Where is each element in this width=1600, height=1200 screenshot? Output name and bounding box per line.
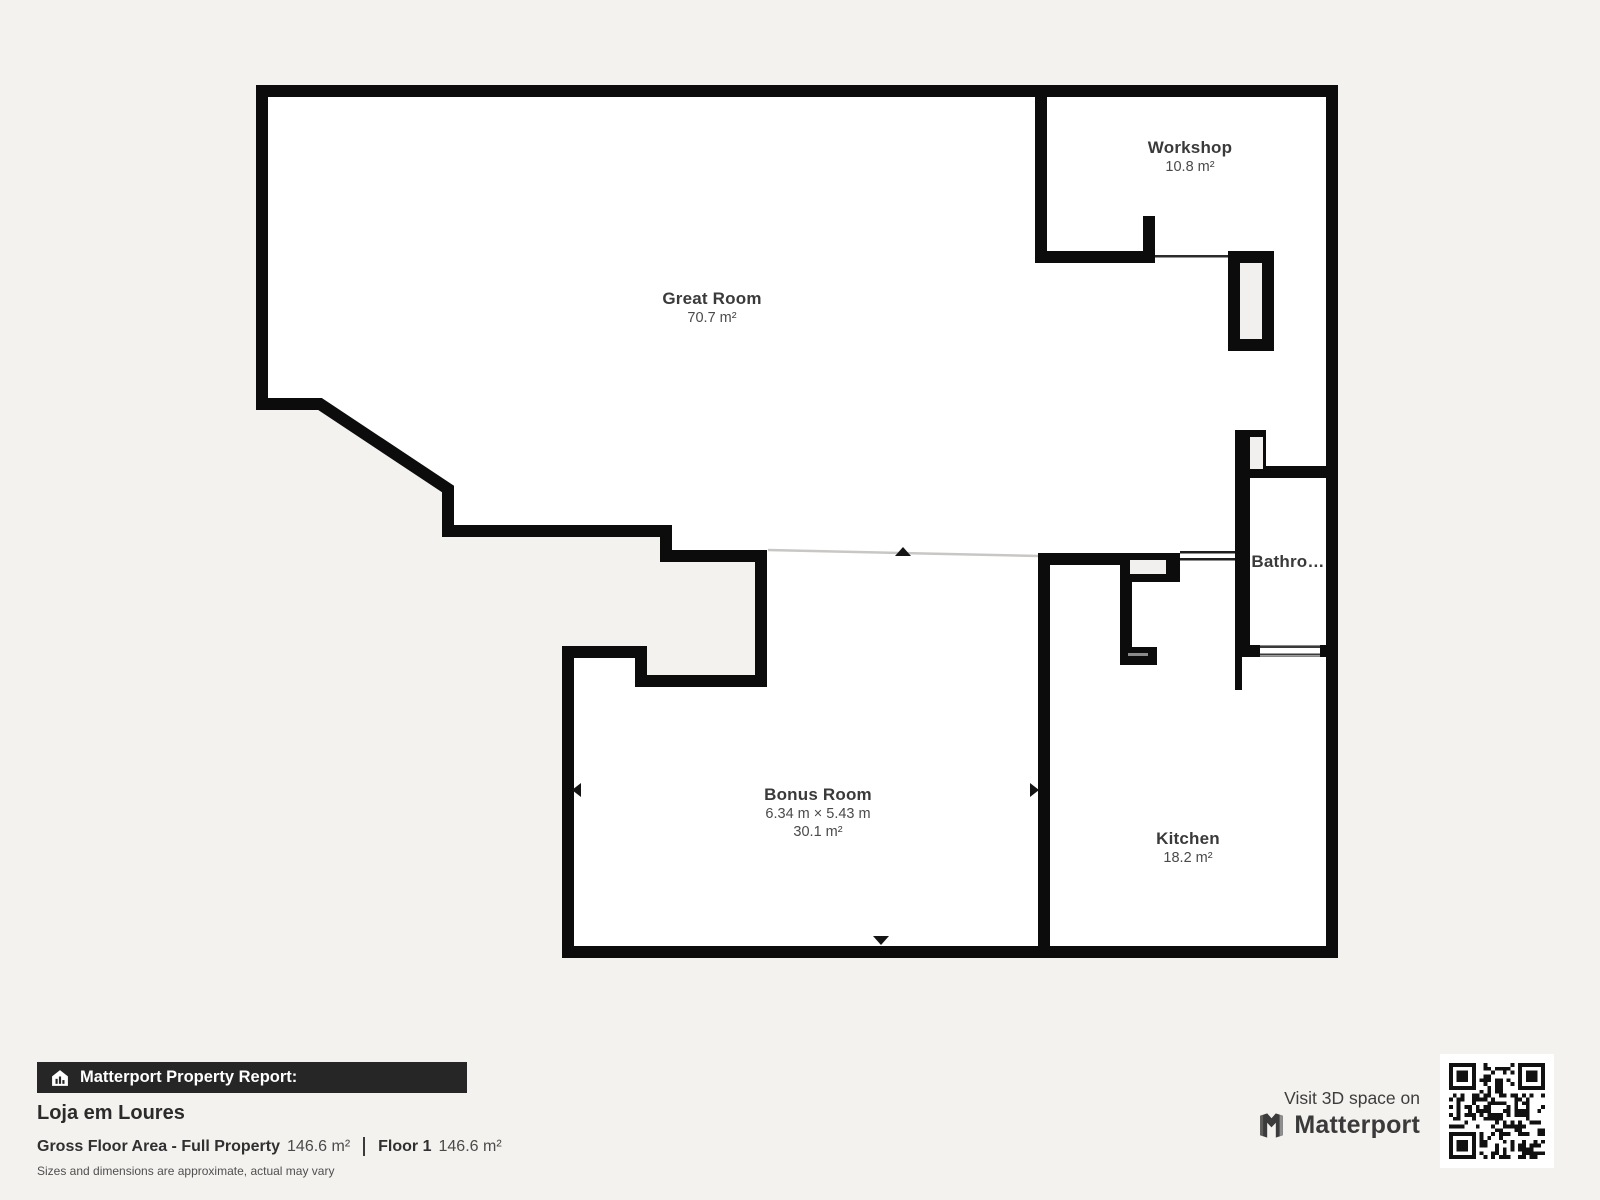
room-name: Bonus Room <box>764 784 872 805</box>
room-label-kitchen: Kitchen 18.2 m² <box>1156 828 1220 867</box>
room-name: Bathro… <box>1251 551 1324 572</box>
room-area: 30.1 m² <box>764 823 872 841</box>
room-name: Great Room <box>662 288 761 309</box>
room-dimensions: 6.34 m × 5.43 m <box>764 805 872 823</box>
page: { "colors": { "background": "#f4f2ef", "… <box>0 0 1600 1200</box>
divider <box>363 1137 365 1156</box>
matterport-logo-icon <box>1258 1112 1285 1139</box>
room-area: 10.8 m² <box>1148 158 1232 176</box>
room-label-great-room: Great Room 70.7 m² <box>662 288 761 327</box>
room-area: 18.2 m² <box>1156 849 1220 867</box>
floor-plan <box>0 0 1600 1200</box>
disclaimer-text: Sizes and dimensions are approximate, ac… <box>37 1164 334 1178</box>
matterport-brand: Matterport <box>1258 1111 1420 1140</box>
floor-label: Floor 1 <box>378 1138 431 1156</box>
room-label-bonus-room: Bonus Room 6.34 m × 5.43 m 30.1 m² <box>764 784 872 841</box>
room-name: Workshop <box>1148 137 1232 158</box>
room-label-workshop: Workshop 10.8 m² <box>1148 137 1232 176</box>
visit-3d-text: Visit 3D space on <box>1284 1088 1420 1109</box>
gross-area-value: 146.6 m² <box>287 1138 350 1156</box>
area-summary: Gross Floor Area - Full Property 146.6 m… <box>37 1137 502 1156</box>
room-name: Kitchen <box>1156 828 1220 849</box>
gross-area-label: Gross Floor Area - Full Property <box>37 1138 280 1156</box>
floor-value: 146.6 m² <box>439 1138 502 1156</box>
report-badge-label: Matterport Property Report: <box>80 1068 297 1087</box>
matterport-wordmark: Matterport <box>1294 1111 1420 1140</box>
qr-code <box>1440 1054 1554 1168</box>
house-chart-icon <box>50 1068 70 1088</box>
room-area: 70.7 m² <box>662 309 761 327</box>
report-badge-bar: Matterport Property Report: <box>37 1062 467 1093</box>
property-name: Loja em Loures <box>37 1102 185 1125</box>
room-label-bathroom: Bathro… <box>1251 551 1324 572</box>
